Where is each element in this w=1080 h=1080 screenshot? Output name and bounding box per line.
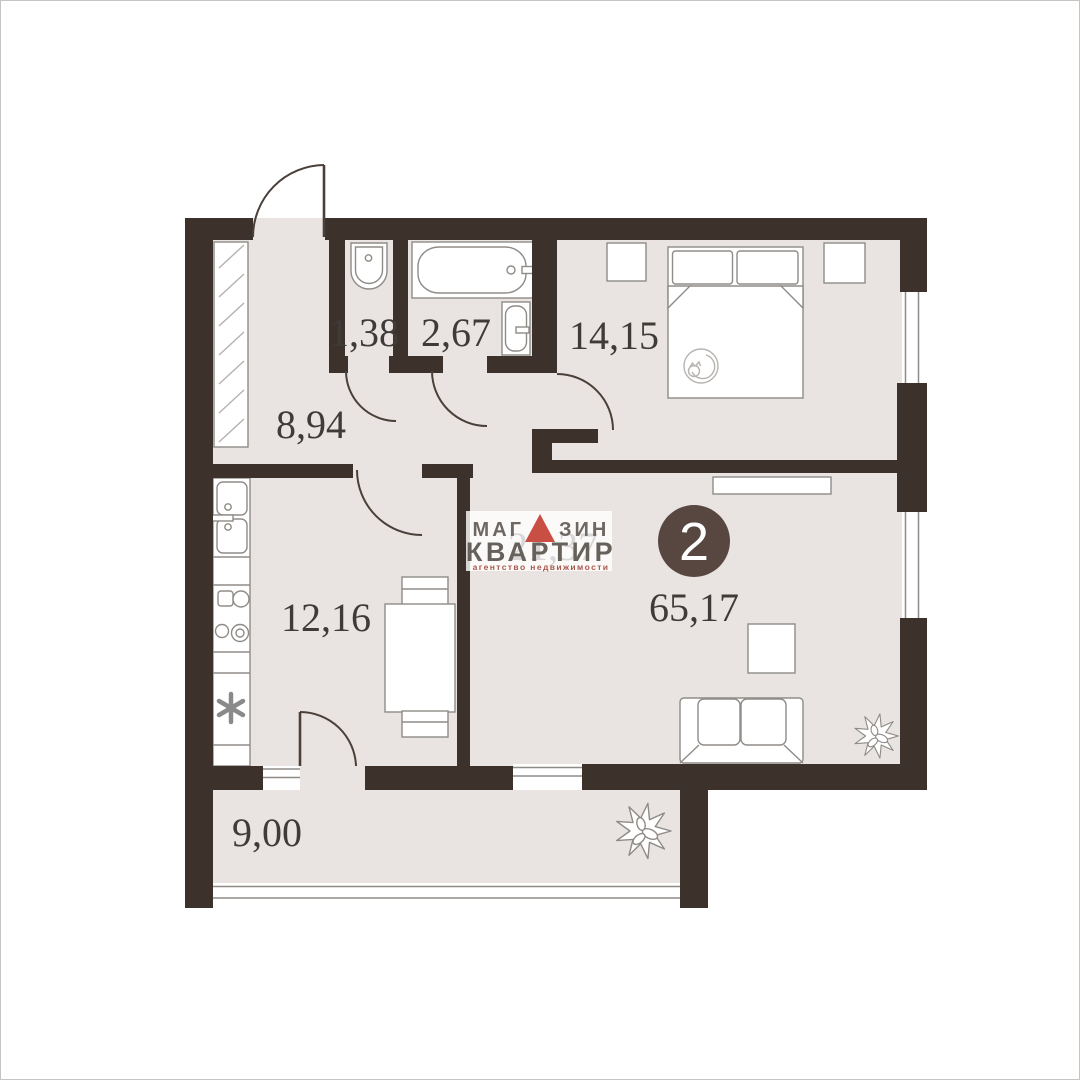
wall-top	[325, 218, 927, 240]
chair-bottom	[402, 711, 448, 737]
chair-top	[402, 577, 448, 605]
nightstand-left	[607, 243, 646, 281]
balcony-glazing	[213, 883, 680, 901]
total-area-label: 65,17	[649, 585, 739, 630]
badge-number: 2	[679, 512, 709, 572]
wall-kitchen-balcony-right	[365, 766, 513, 790]
logo-watermark: МАГ ЗИН КВАРТИР агентство недвижимости	[466, 511, 616, 572]
logo-tagline: агентство недвижимости	[473, 562, 610, 572]
window-bedroom	[902, 292, 923, 383]
floor-balcony-door-gap	[300, 764, 365, 790]
room-label-bathroom: 2,67	[421, 310, 491, 355]
floor-entrance-gap	[253, 218, 325, 240]
kitchen-counter	[211, 478, 250, 766]
room-label-bedroom: 14,15	[569, 313, 659, 358]
toilet-fixture	[351, 243, 387, 289]
wall-bedroom-sw-horz	[532, 429, 598, 443]
wall-kitchen-top-left	[213, 464, 353, 478]
room-label-kitchen: 12,16	[281, 595, 371, 640]
wall-right-bottom	[900, 618, 927, 766]
floor-plan-svg: 21,37	[0, 0, 1080, 1080]
floor-plan-page: 21,37	[0, 0, 1080, 1080]
wall-bedroom-living-divider	[545, 460, 900, 473]
wall-bath-bedroom	[532, 240, 557, 358]
double-bed	[668, 247, 803, 398]
wall-balcony-right	[680, 790, 708, 908]
wall-right-middle	[897, 383, 927, 512]
tv-console	[713, 477, 831, 494]
coffee-table	[748, 624, 795, 673]
wall-san-bottom-3	[487, 356, 557, 373]
window-living-room	[902, 512, 923, 618]
window-living-balcony	[513, 764, 582, 790]
wall-kitchen-balcony-left	[213, 766, 263, 790]
wall-left	[185, 218, 213, 908]
nightstand-right	[824, 243, 865, 283]
rooms-count-badge: 2	[658, 505, 730, 577]
washbasin	[502, 302, 530, 355]
wall-living-bottom	[582, 764, 927, 790]
bathtub	[412, 242, 535, 298]
room-label-balcony: 9,00	[232, 810, 302, 855]
wardrobe	[214, 242, 248, 447]
kitchen-table	[385, 604, 455, 712]
room-label-toilet: 1,38	[329, 310, 399, 355]
wall-san-bottom-2	[389, 356, 443, 373]
wall-right-top	[900, 240, 927, 292]
wall-san-bottom-1	[329, 356, 348, 373]
sofa	[680, 698, 803, 763]
window-kitchen-balcony	[263, 766, 300, 790]
wall-kitchen-living-divider	[457, 464, 470, 766]
room-label-hallway: 8,94	[276, 402, 346, 447]
